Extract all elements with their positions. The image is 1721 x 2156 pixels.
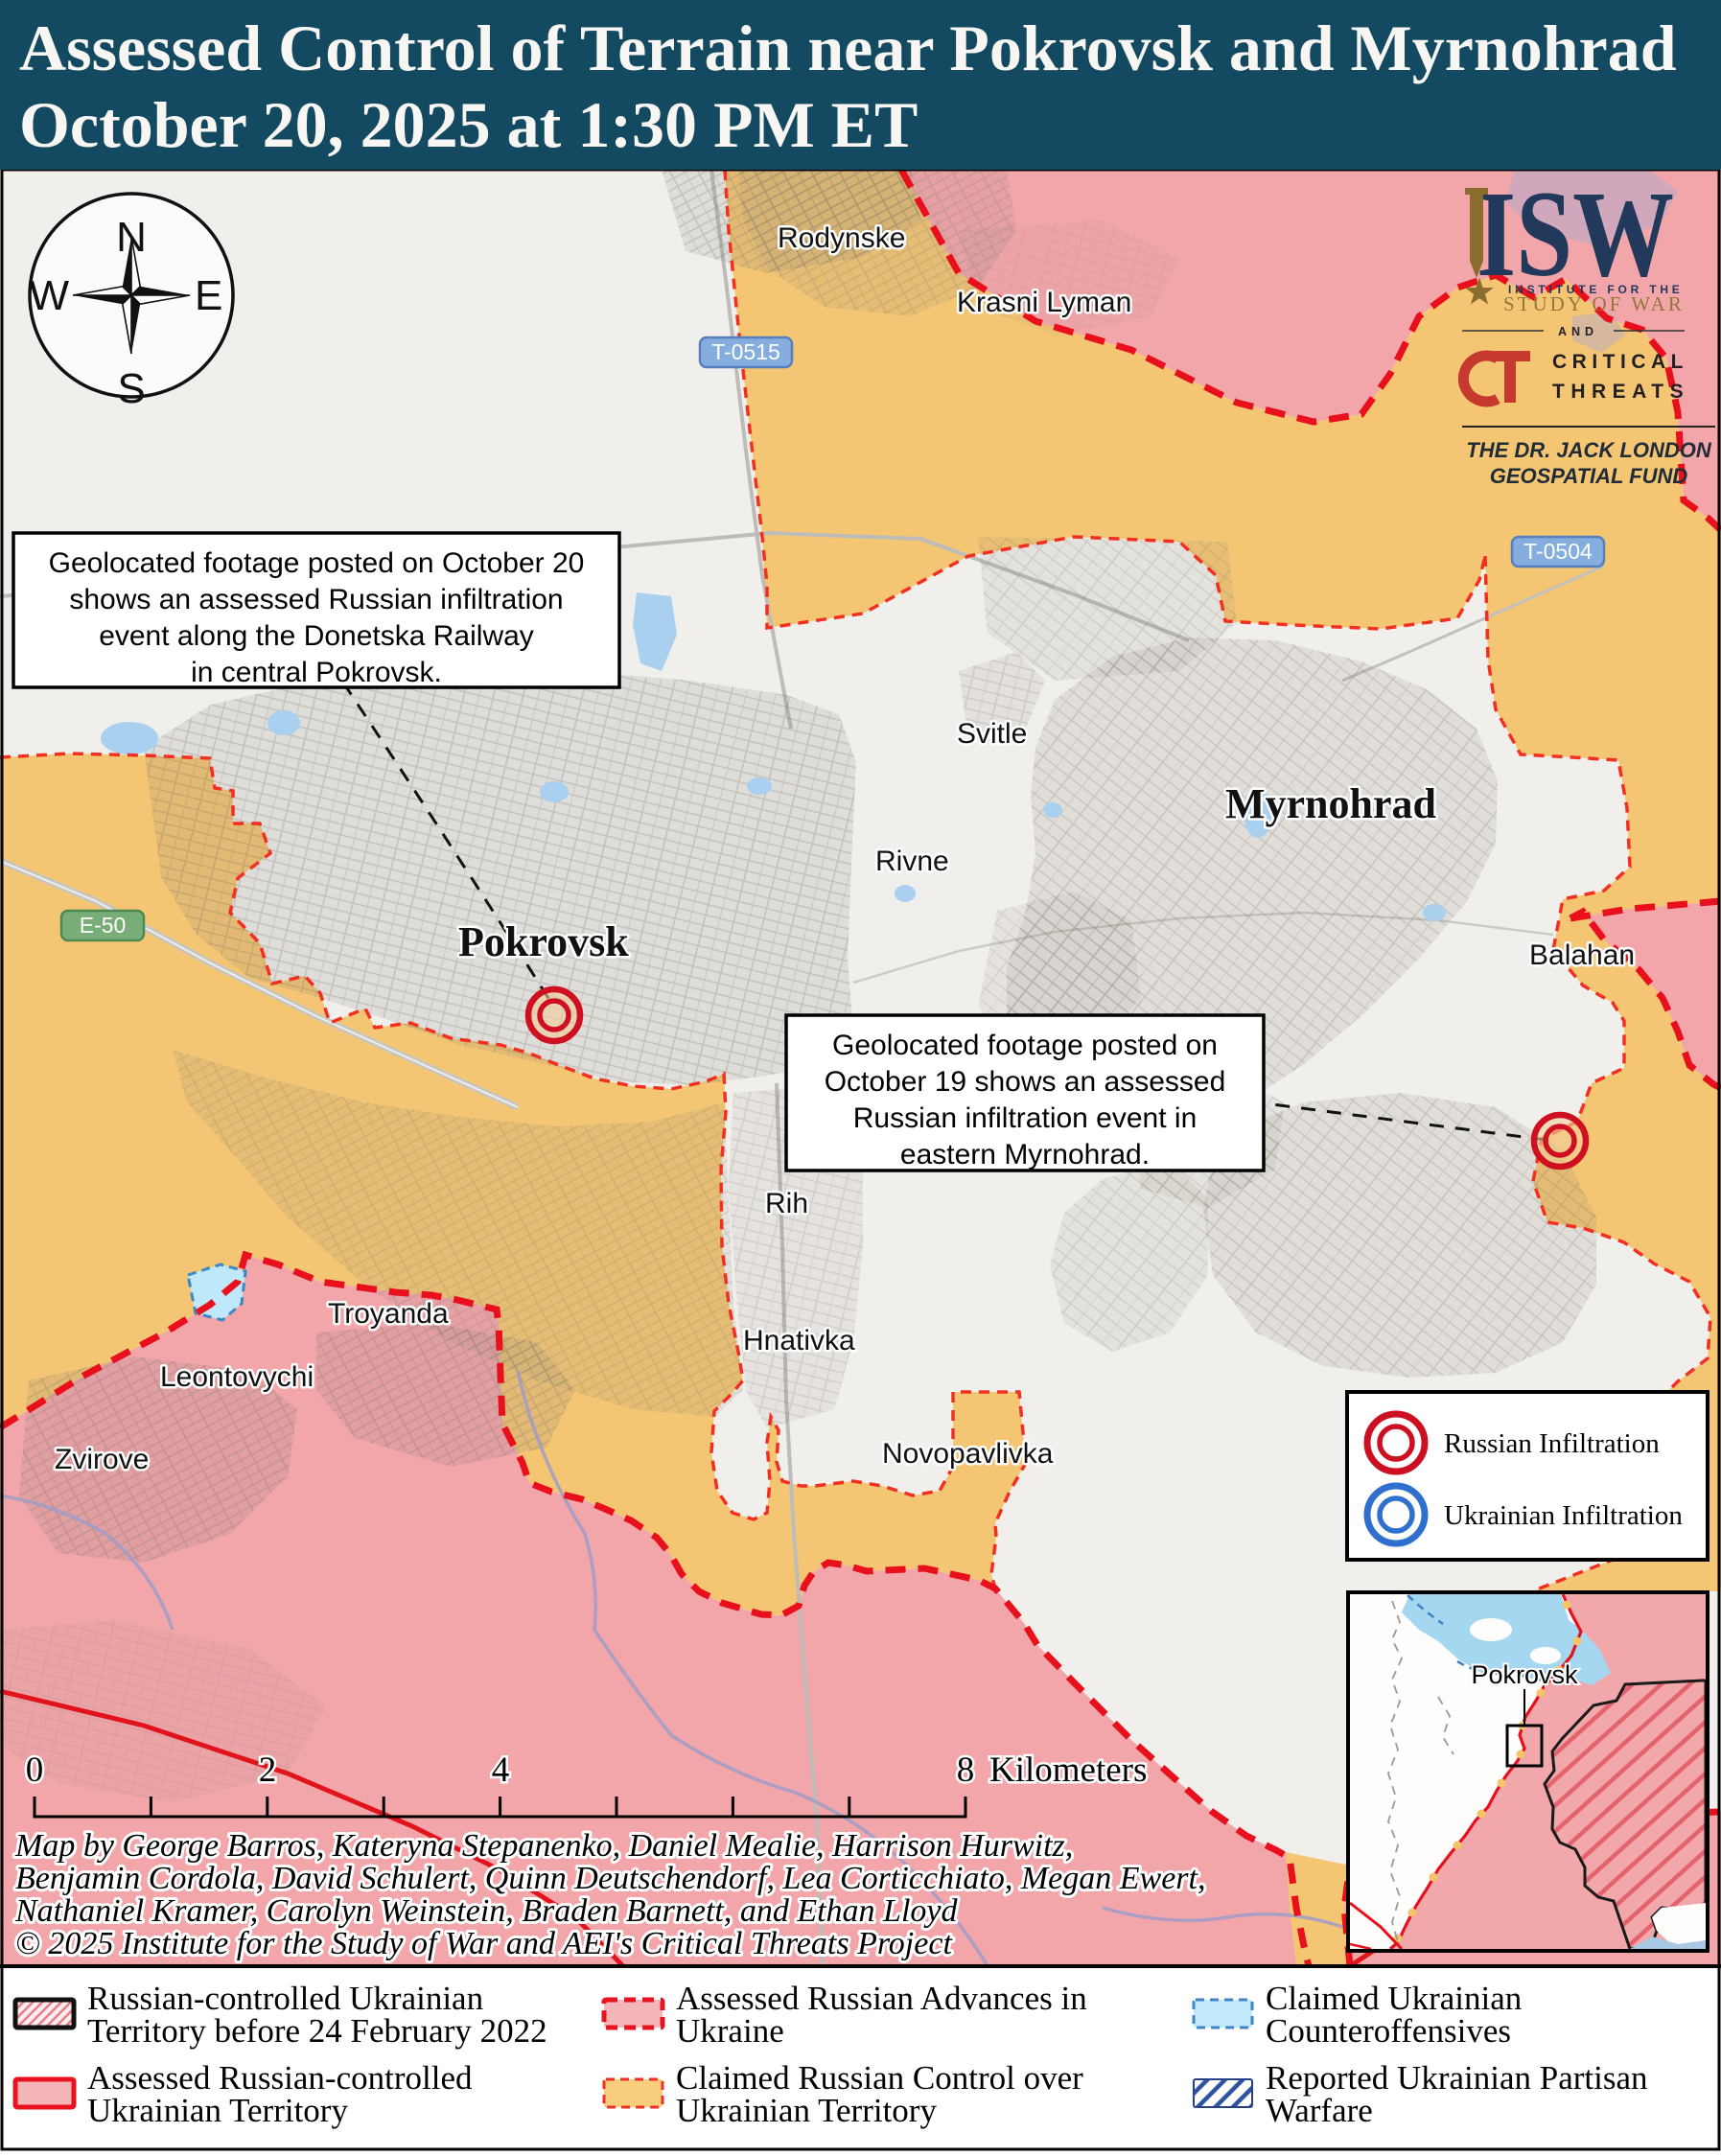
- svg-text:Ukraine: Ukraine: [676, 2012, 784, 2050]
- svg-text:T-0504: T-0504: [1523, 539, 1593, 564]
- svg-text:Rivne: Rivne: [875, 846, 949, 877]
- svg-text:T-0515: T-0515: [711, 339, 780, 364]
- svg-text:Myrnohrad: Myrnohrad: [1225, 780, 1436, 827]
- svg-text:8: 8: [957, 1750, 975, 1790]
- svg-text:N: N: [116, 214, 147, 261]
- svg-text:E: E: [195, 272, 222, 319]
- svg-text:Balahan: Balahan: [1529, 939, 1635, 971]
- svg-text:THREATS: THREATS: [1552, 381, 1689, 403]
- svg-text:Benjamin Cordola, David Schule: Benjamin Cordola, David Schulert, Quinn …: [15, 1861, 1205, 1896]
- svg-text:AND: AND: [1558, 325, 1598, 338]
- svg-text:STUDY OF WAR: STUDY OF WAR: [1503, 292, 1685, 315]
- svg-text:4: 4: [492, 1750, 510, 1790]
- svg-text:GEOSPATIAL FUND: GEOSPATIAL FUND: [1490, 464, 1688, 488]
- svg-text:Map by George Barros, Kateryna: Map by George Barros, Kateryna Stepanenk…: [14, 1828, 1073, 1864]
- svg-text:Kilometers: Kilometers: [989, 1750, 1147, 1790]
- svg-text:event along the Donetska Railw: event along the Donetska Railway: [99, 620, 534, 652]
- svg-text:Ukrainian Infiltration: Ukrainian Infiltration: [1444, 1500, 1683, 1531]
- svg-text:Zvirove: Zvirove: [55, 1444, 149, 1475]
- svg-text:2: 2: [259, 1750, 277, 1790]
- svg-text:Rodynske: Rodynske: [778, 222, 905, 254]
- svg-text:Warfare: Warfare: [1266, 2092, 1373, 2129]
- svg-text:Pokrovsk: Pokrovsk: [1471, 1660, 1578, 1689]
- svg-text:Counteroffensives: Counteroffensives: [1266, 2012, 1511, 2050]
- svg-text:W: W: [29, 272, 69, 319]
- svg-text:shows an assessed Russian infi: shows an assessed Russian infiltration: [69, 584, 563, 615]
- svg-text:October 19 shows an assessed: October 19 shows an assessed: [825, 1066, 1226, 1098]
- svg-text:S: S: [117, 365, 145, 412]
- svg-text:Rih: Rih: [765, 1188, 808, 1219]
- svg-text:THE DR. JACK LONDON: THE DR. JACK LONDON: [1466, 438, 1712, 462]
- svg-text:Leontovychi: Leontovychi: [160, 1361, 314, 1393]
- svg-text:Russian infiltration event in: Russian infiltration event in: [853, 1102, 1198, 1134]
- svg-text:Geolocated footage posted on: Geolocated footage posted on: [832, 1030, 1218, 1061]
- svg-text:Geolocated footage posted on O: Geolocated footage posted on October 20: [49, 547, 585, 579]
- svg-text:in central Pokrovsk.: in central Pokrovsk.: [191, 657, 442, 688]
- svg-text:ISW: ISW: [1477, 166, 1674, 302]
- svg-text:© 2025 Institute for the Study: © 2025 Institute for the Study of War an…: [15, 1926, 953, 1961]
- svg-text:Russian Infiltration: Russian Infiltration: [1444, 1428, 1660, 1459]
- svg-text:Assessed Control of Terrain ne: Assessed Control of Terrain near Pokrovs…: [19, 12, 1677, 84]
- svg-text:Svitle: Svitle: [957, 718, 1027, 750]
- svg-text:Krasni Lyman: Krasni Lyman: [957, 287, 1131, 318]
- svg-text:Ukrainian Territory: Ukrainian Territory: [87, 2092, 348, 2129]
- svg-text:Troyanda: Troyanda: [328, 1298, 449, 1330]
- svg-text:E-50: E-50: [80, 913, 127, 938]
- svg-text:October 20, 2025 at 1:30 PM ET: October 20, 2025 at 1:30 PM ET: [19, 88, 918, 161]
- svg-text:0: 0: [26, 1750, 44, 1790]
- svg-text:Pokrovsk: Pokrovsk: [458, 918, 629, 965]
- svg-text:Novopavlivka: Novopavlivka: [882, 1438, 1054, 1470]
- svg-text:Ukrainian Territory: Ukrainian Territory: [676, 2092, 937, 2129]
- svg-text:Nathaniel Kramer, Carolyn Wein: Nathaniel Kramer, Carolyn Weinstein, Bra…: [14, 1893, 958, 1929]
- svg-text:CRITICAL: CRITICAL: [1552, 351, 1688, 373]
- svg-text:Territory before 24 February 2: Territory before 24 February 2022: [87, 2012, 547, 2050]
- svg-text:eastern Myrnohrad.: eastern Myrnohrad.: [900, 1139, 1150, 1171]
- svg-text:Hnativka: Hnativka: [743, 1325, 855, 1356]
